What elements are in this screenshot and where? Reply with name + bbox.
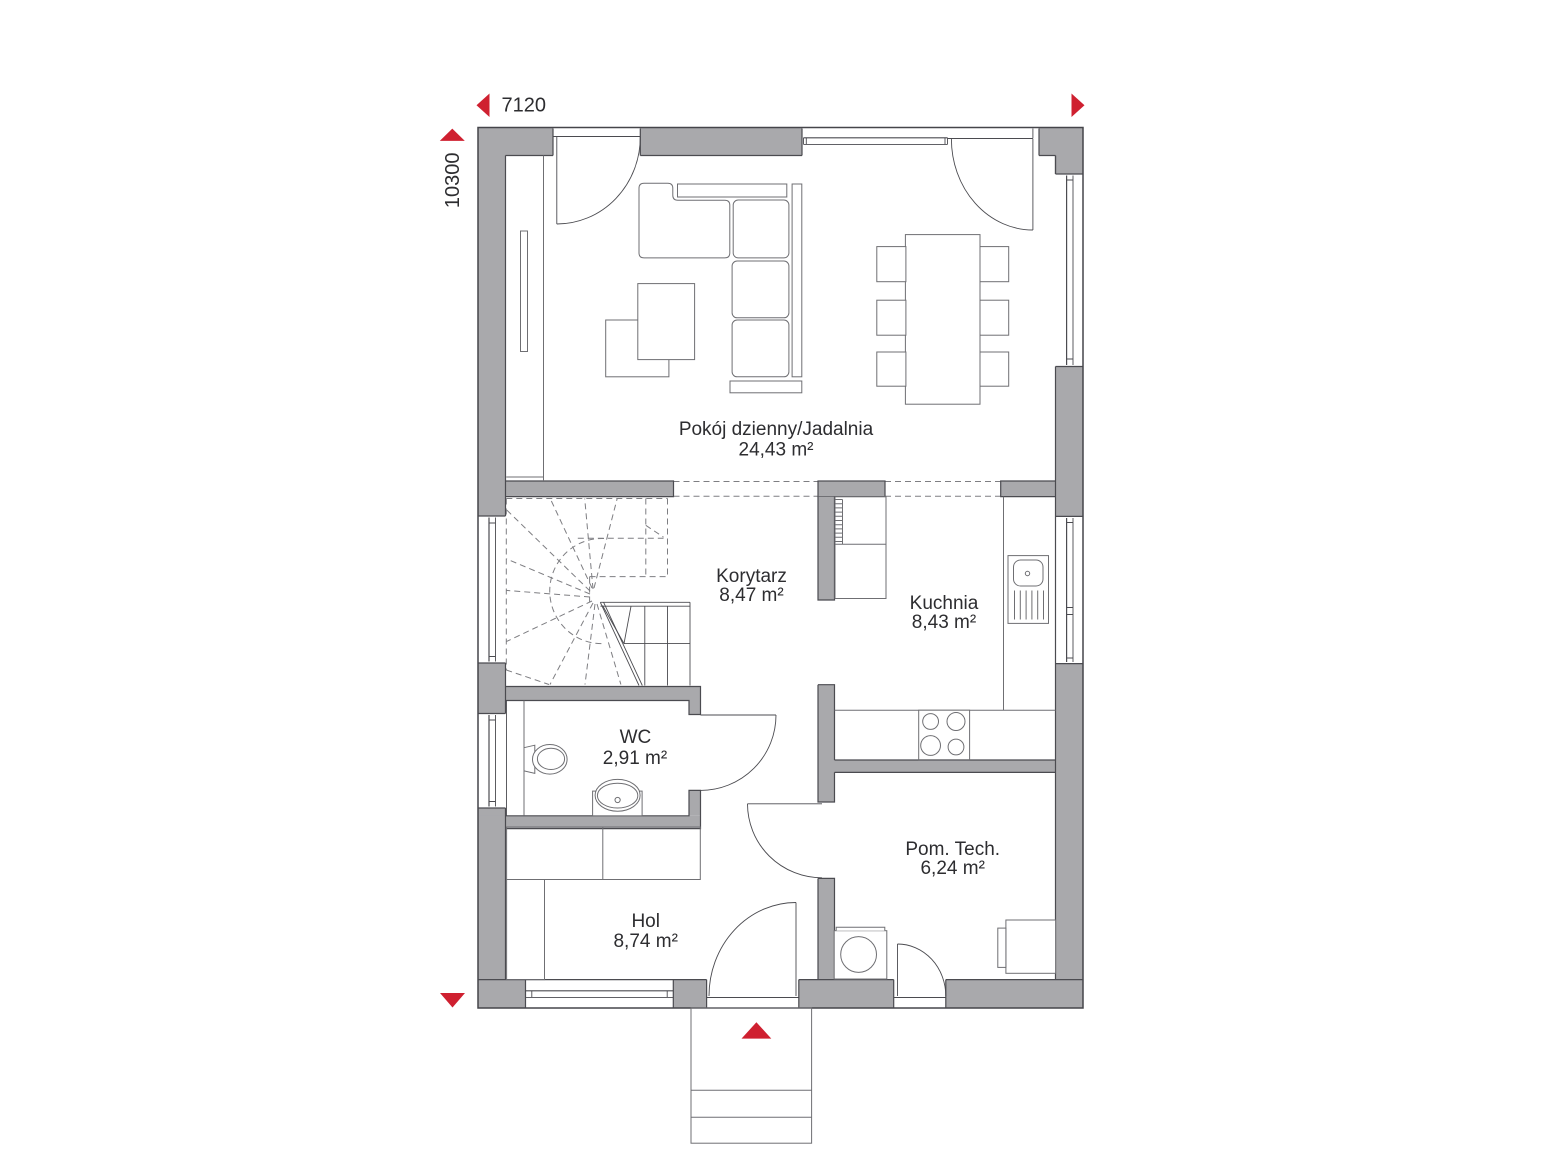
svg-text:10300: 10300	[442, 152, 464, 208]
svg-text:Pokój dzienny/Jadalnia: Pokój dzienny/Jadalnia	[679, 419, 874, 440]
svg-text:24,43 m²: 24,43 m²	[739, 440, 814, 461]
svg-text:Hol: Hol	[631, 911, 660, 932]
svg-text:6,24 m²: 6,24 m²	[920, 858, 984, 879]
svg-text:2,91 m²: 2,91 m²	[603, 748, 667, 769]
svg-text:8,47 m²: 8,47 m²	[719, 585, 783, 606]
svg-text:7120: 7120	[502, 94, 547, 116]
svg-text:8,74 m²: 8,74 m²	[613, 931, 677, 952]
svg-text:WC: WC	[620, 727, 652, 748]
svg-text:Pom. Tech.: Pom. Tech.	[905, 839, 1000, 860]
svg-text:Korytarz: Korytarz	[716, 566, 787, 587]
svg-text:Kuchnia: Kuchnia	[910, 593, 979, 614]
svg-text:8,43 m²: 8,43 m²	[912, 612, 976, 633]
